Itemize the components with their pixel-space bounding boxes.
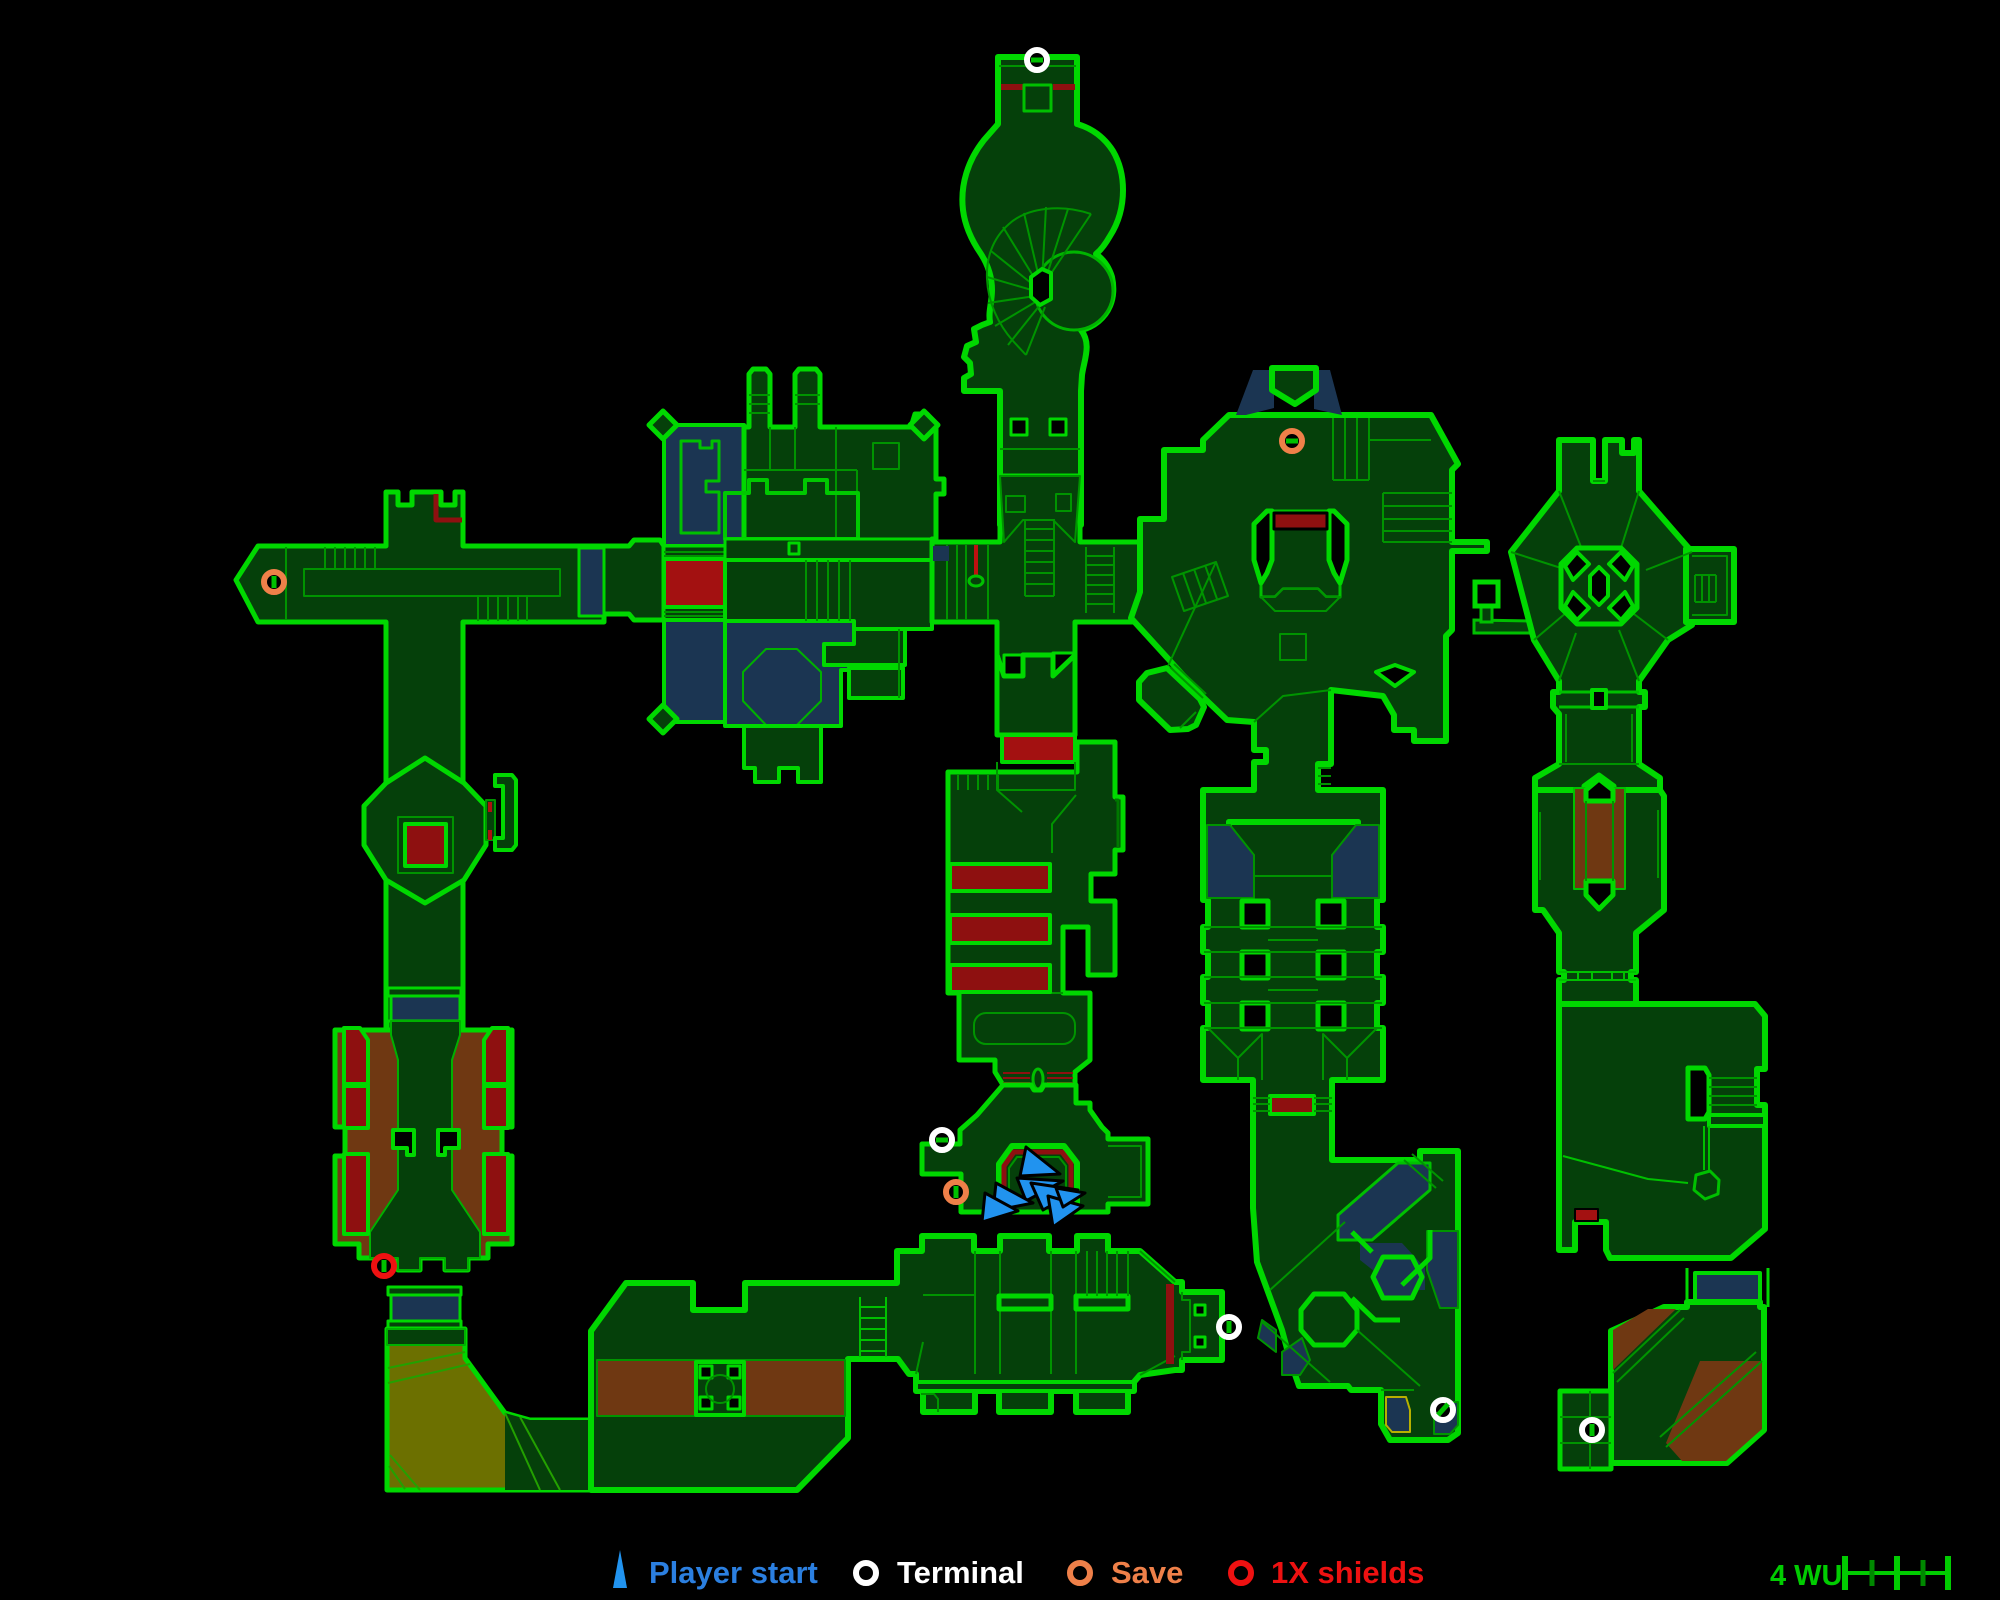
svg-text:Terminal: Terminal	[897, 1555, 1024, 1590]
svg-text:1X shields: 1X shields	[1271, 1555, 1424, 1590]
svg-text:Player start: Player start	[649, 1555, 818, 1590]
svg-text:Save: Save	[1111, 1555, 1183, 1590]
svg-text:4 WU: 4 WU	[1770, 1560, 1843, 1592]
